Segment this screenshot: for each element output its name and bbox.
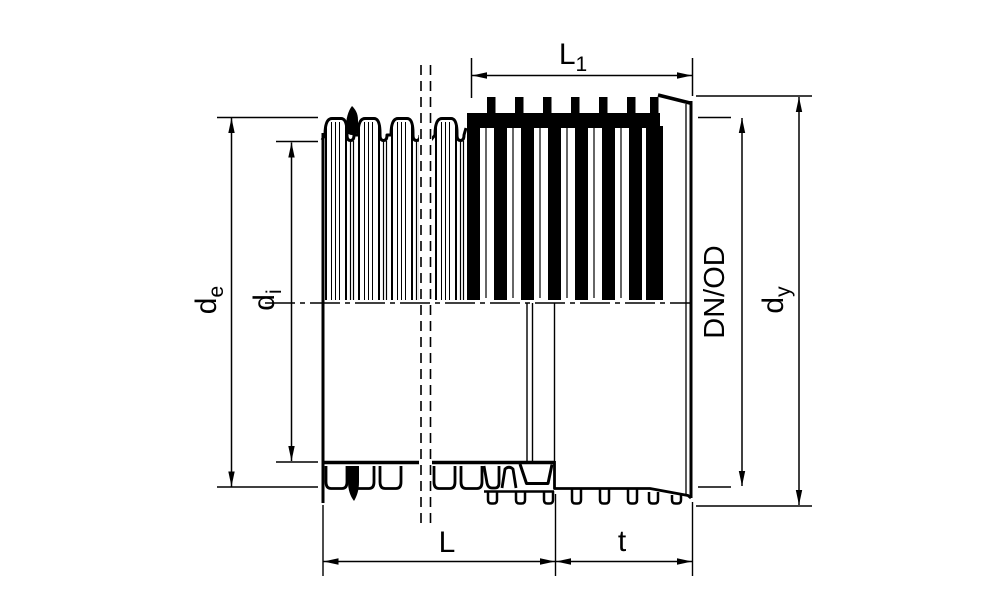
- dimension-arrowhead: [324, 558, 339, 564]
- socket-section-bar: [548, 126, 561, 300]
- dimension-arrowhead: [556, 558, 571, 564]
- section-cut-blob-bottom: [348, 466, 359, 501]
- bottom-rib-tooth: [544, 491, 553, 504]
- dimension-arrowhead: [677, 558, 692, 564]
- bottom-rib-tooth: [516, 491, 525, 504]
- socket-top-band: [467, 113, 660, 128]
- bottom-rib-tooth: [572, 489, 581, 504]
- bottom-rib-tooth: [488, 491, 497, 504]
- section-cut-blob-top: [346, 106, 358, 135]
- label-L1: L1: [559, 38, 587, 76]
- pipe-profile: [265, 60, 691, 528]
- dimension-arrowhead: [677, 72, 692, 78]
- bottom-rib-tooth: [672, 495, 681, 504]
- dimension-arrowhead: [472, 72, 487, 78]
- socket-rib-tab: [487, 97, 496, 115]
- figure-container: L1 de di DN/OD dy L t: [0, 0, 992, 616]
- socket-section-bar: [467, 126, 480, 300]
- socket-rib-tab: [650, 97, 659, 115]
- bottom-corrugation-cup: [380, 466, 401, 489]
- label-t: t: [618, 525, 627, 558]
- dimension-arrowhead: [739, 471, 745, 486]
- label-di: di: [248, 289, 286, 310]
- bottom-corrugation-cup: [434, 466, 455, 489]
- socket-rib-tab: [515, 97, 524, 115]
- bottom-rib-tooth: [600, 489, 609, 504]
- socket-rib-tab: [543, 97, 552, 115]
- socket-section-bar: [494, 126, 507, 300]
- socket-rib-tab: [599, 97, 608, 115]
- label-dnod: DN/OD: [699, 245, 731, 338]
- dimension-arrowhead: [739, 118, 745, 133]
- dimension-arrowhead: [228, 118, 234, 133]
- bottom-rib-tooth: [628, 489, 637, 504]
- bottom-rib-tooth: [649, 492, 658, 504]
- label-de: de: [190, 286, 228, 314]
- technical-drawing: L1 de di DN/OD dy L t: [0, 0, 992, 616]
- seal-seat-trapezoid: [520, 464, 552, 484]
- bottom-corrugation-cup: [326, 466, 347, 489]
- socket-section-bar: [646, 126, 663, 300]
- socket-rib-tab: [571, 97, 580, 115]
- transition-cup: [484, 466, 499, 488]
- socket-section-bar: [629, 126, 642, 300]
- dimension-arrowhead: [288, 143, 294, 158]
- dimension-arrowhead: [228, 472, 234, 487]
- socket-section-bar: [602, 126, 615, 300]
- dimension-arrowhead: [540, 558, 555, 564]
- socket-rib-tab: [627, 97, 636, 115]
- seal-arch: [502, 467, 516, 488]
- socket-chamfer: [658, 95, 690, 103]
- dimension-arrowhead: [288, 446, 294, 461]
- bottom-corrugation-cup: [461, 466, 482, 489]
- dimension-arrowhead: [796, 490, 802, 505]
- label-dy: dy: [757, 286, 795, 314]
- dimension-arrowhead: [796, 97, 802, 112]
- socket-bottom-band: [555, 461, 692, 498]
- socket-section-bar: [521, 126, 534, 300]
- label-L: L: [439, 526, 456, 559]
- socket-section-bar: [575, 126, 588, 300]
